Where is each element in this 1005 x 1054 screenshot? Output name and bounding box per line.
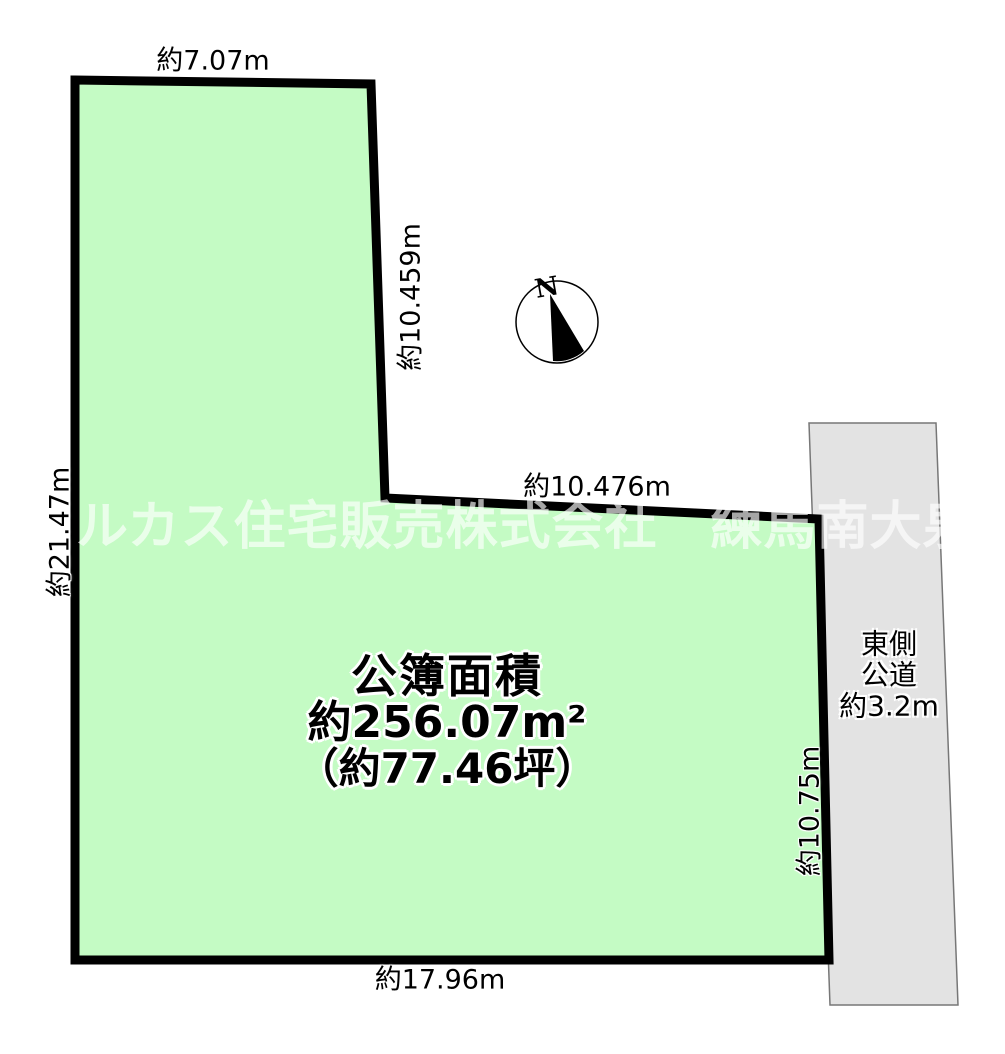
dimension-top: 約7.07m	[156, 39, 269, 78]
dimension-left: 約21.47m	[38, 467, 77, 598]
area-tsubo: （約77.46坪）	[297, 746, 598, 792]
area-square-meters: 約256.07m²	[297, 700, 598, 746]
road-label: 東側 公道 約3.2m	[839, 629, 939, 722]
dimension-bottom: 約17.96m	[375, 958, 506, 997]
area-label: 公簿面積 約256.07m² （約77.46坪）	[297, 652, 598, 792]
dimension-upper-right: 約10.459m	[389, 223, 428, 371]
road-label-type: 公道	[839, 660, 939, 691]
road-label-width: 約3.2m	[839, 691, 939, 722]
site-plan-canvas: 約7.07m 約10.459m 約10.476m 約21.47m 約10.75m…	[0, 0, 1005, 1054]
dimension-lower-right: 約10.75m	[788, 746, 827, 877]
company-watermark: ルカス住宅販売株式会社 練馬南大泉	[76, 501, 975, 553]
area-title: 公簿面積	[297, 652, 598, 700]
compass-north-label: N	[533, 271, 562, 305]
road-label-side: 東側	[839, 629, 939, 660]
